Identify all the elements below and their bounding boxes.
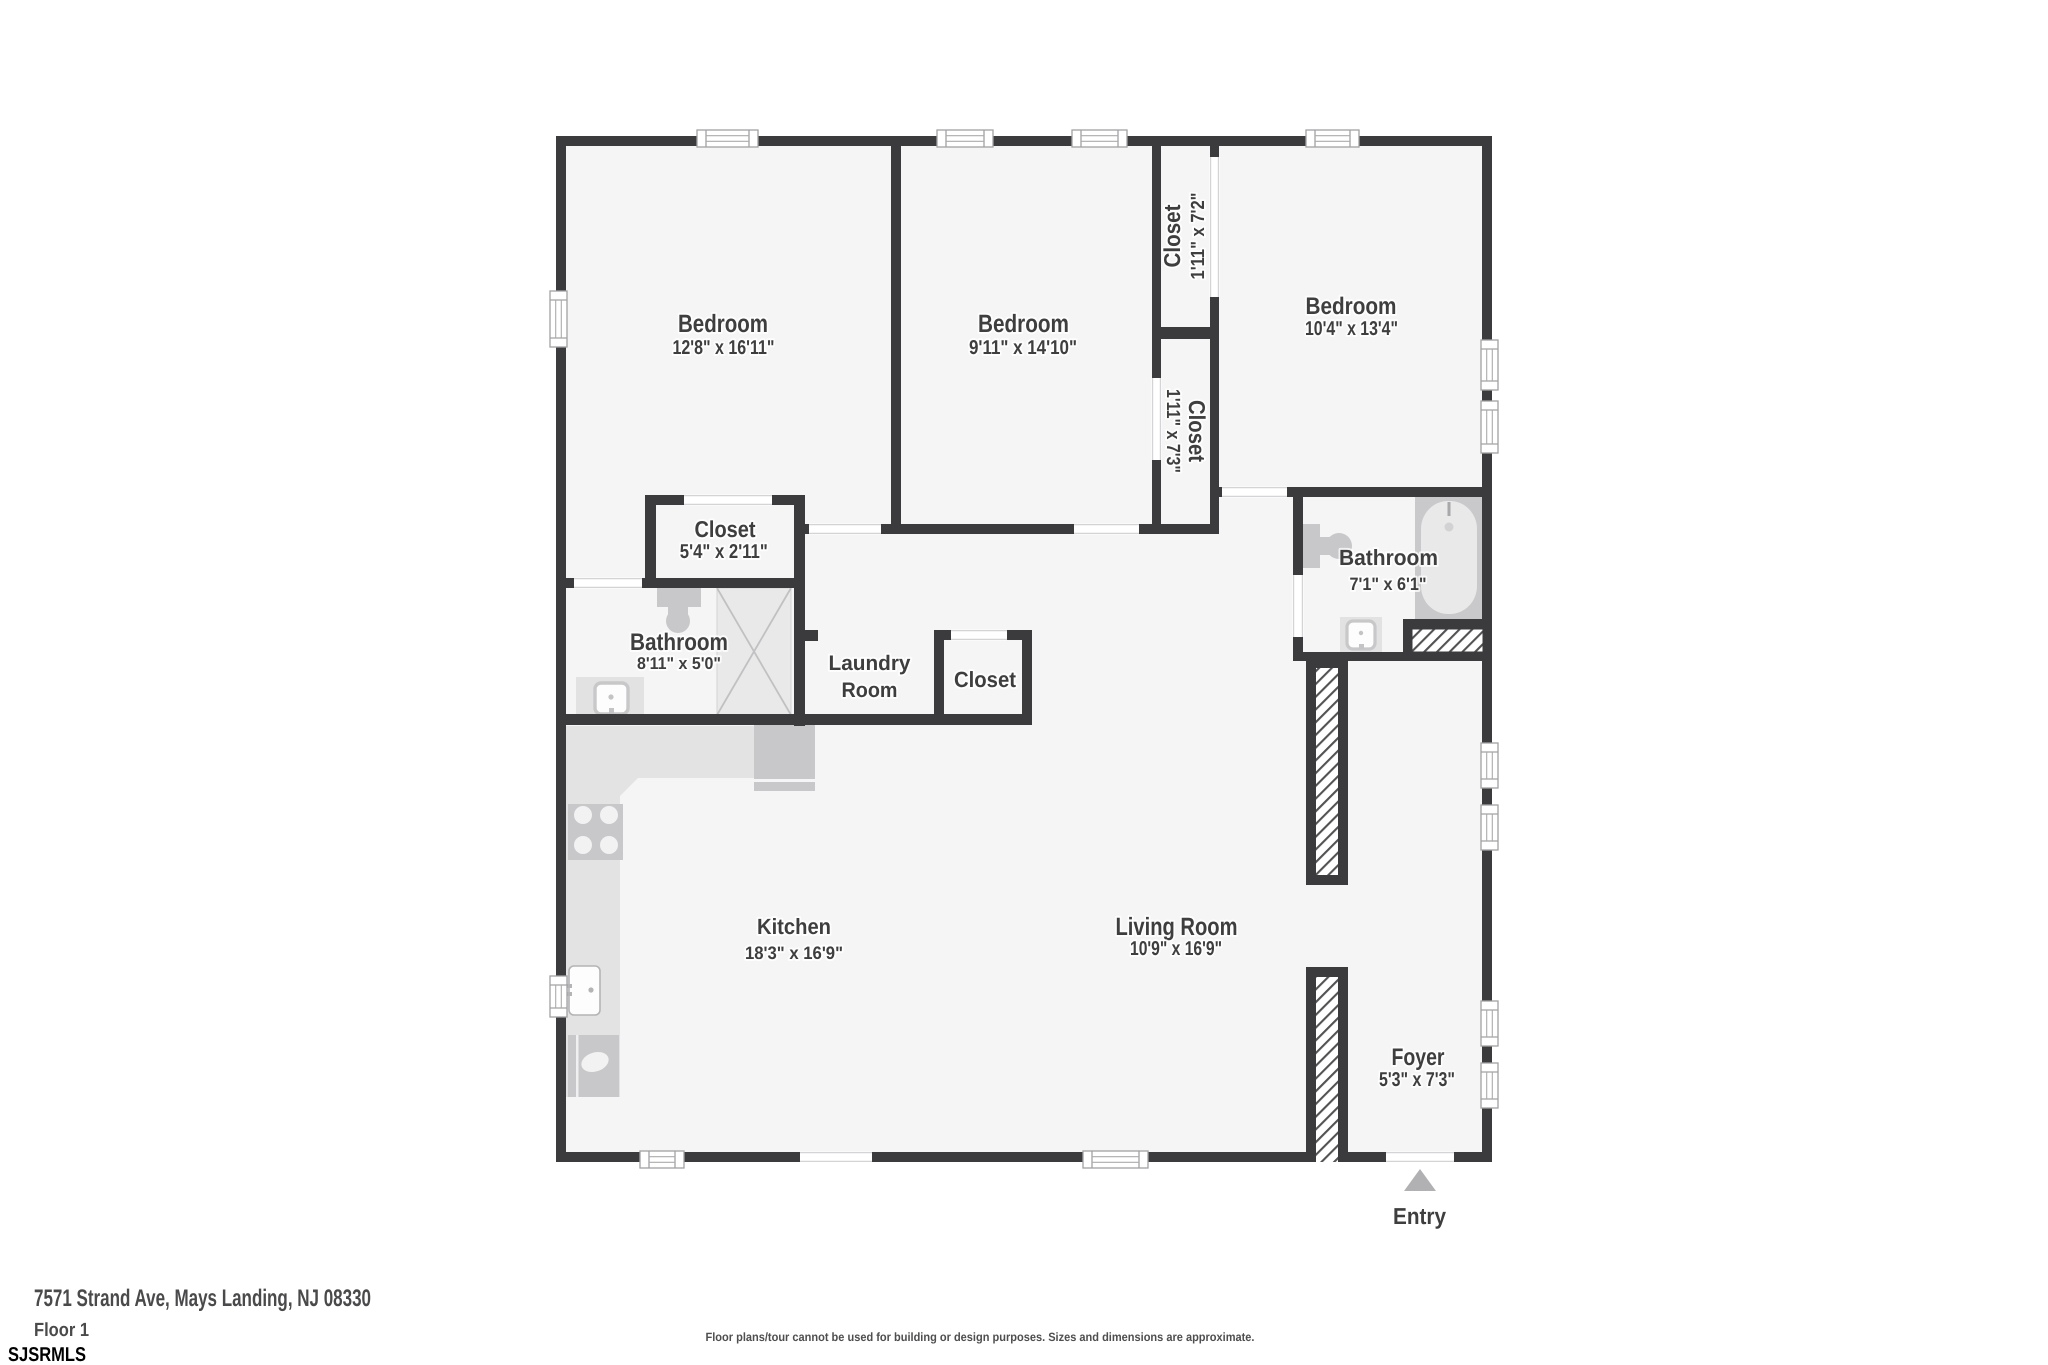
svg-text:Laundry: Laundry (829, 652, 911, 675)
svg-text:Bedroom: Bedroom (978, 310, 1069, 338)
svg-text:12'8" x 16'11": 12'8" x 16'11" (673, 337, 775, 359)
svg-text:1'11" x 7'2": 1'11" x 7'2" (1188, 193, 1209, 280)
svg-text:9'11" x 14'10": 9'11" x 14'10" (969, 337, 1077, 359)
svg-text:Closet: Closet (695, 516, 756, 542)
svg-text:5'4" x 2'11": 5'4" x 2'11" (680, 541, 768, 563)
svg-text:Closet: Closet (1159, 204, 1185, 267)
svg-text:Closet: Closet (954, 667, 1017, 692)
svg-text:7571 Strand Ave, Mays Landing,: 7571 Strand Ave, Mays Landing, NJ 08330 (34, 1285, 371, 1312)
svg-text:8'11" x 5'0": 8'11" x 5'0" (637, 654, 721, 673)
svg-text:7'1" x 6'1": 7'1" x 6'1" (1350, 574, 1427, 594)
svg-text:Bathroom: Bathroom (630, 629, 728, 656)
svg-text:10'4" x 13'4": 10'4" x 13'4" (1305, 318, 1398, 340)
svg-text:Bathroom: Bathroom (1339, 545, 1438, 570)
svg-text:Room: Room (842, 679, 898, 702)
svg-text:5'3" x 7'3": 5'3" x 7'3" (1379, 1069, 1455, 1091)
svg-text:18'3" x 16'9": 18'3" x 16'9" (745, 943, 843, 963)
svg-text:Bedroom: Bedroom (678, 310, 768, 338)
svg-text:Entry: Entry (1393, 1203, 1446, 1229)
svg-text:Living Room: Living Room (1116, 913, 1238, 941)
svg-text:Floor plans/tour cannot be use: Floor plans/tour cannot be used for buil… (706, 1330, 1255, 1344)
svg-text:Closet: Closet (1184, 400, 1210, 462)
svg-text:Bedroom: Bedroom (1306, 293, 1397, 320)
svg-text:1'11" x 7'3": 1'11" x 7'3" (1162, 389, 1183, 473)
svg-text:SJSRMLS: SJSRMLS (8, 1344, 86, 1365)
svg-text:Foyer: Foyer (1392, 1044, 1445, 1071)
svg-text:Kitchen: Kitchen (757, 914, 831, 939)
svg-text:10'9" x 16'9": 10'9" x 16'9" (1130, 938, 1222, 960)
svg-text:Floor 1: Floor 1 (34, 1320, 89, 1341)
